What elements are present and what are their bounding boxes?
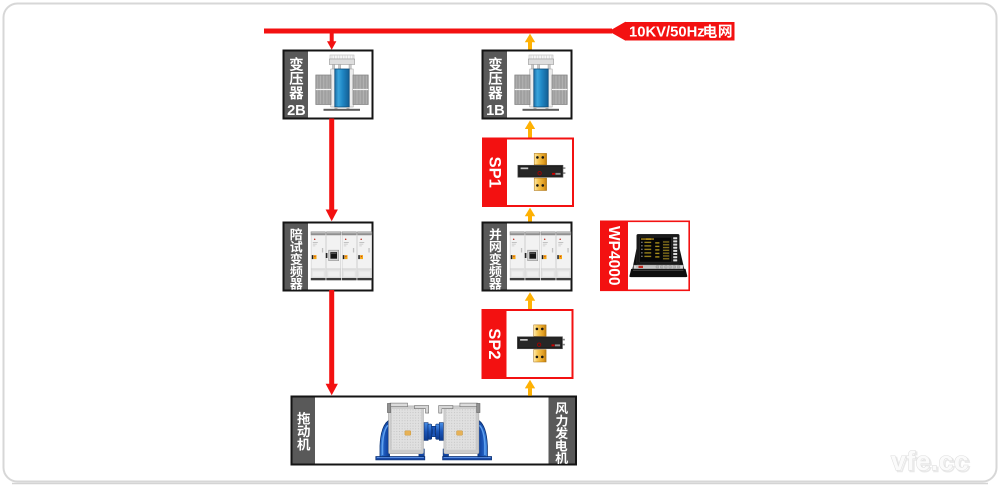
svg-text:1B: 1B — [486, 103, 505, 119]
svg-text:WP4000: WP4000 — [605, 226, 622, 285]
svg-text:10KV/50Hz: 10KV/50Hz — [629, 25, 705, 41]
svg-text:SP1: SP1 — [486, 157, 504, 188]
svg-text:vfe.cc: vfe.cc — [891, 446, 969, 476]
svg-text:SP2: SP2 — [485, 328, 503, 359]
svg-text:2B: 2B — [287, 103, 306, 119]
